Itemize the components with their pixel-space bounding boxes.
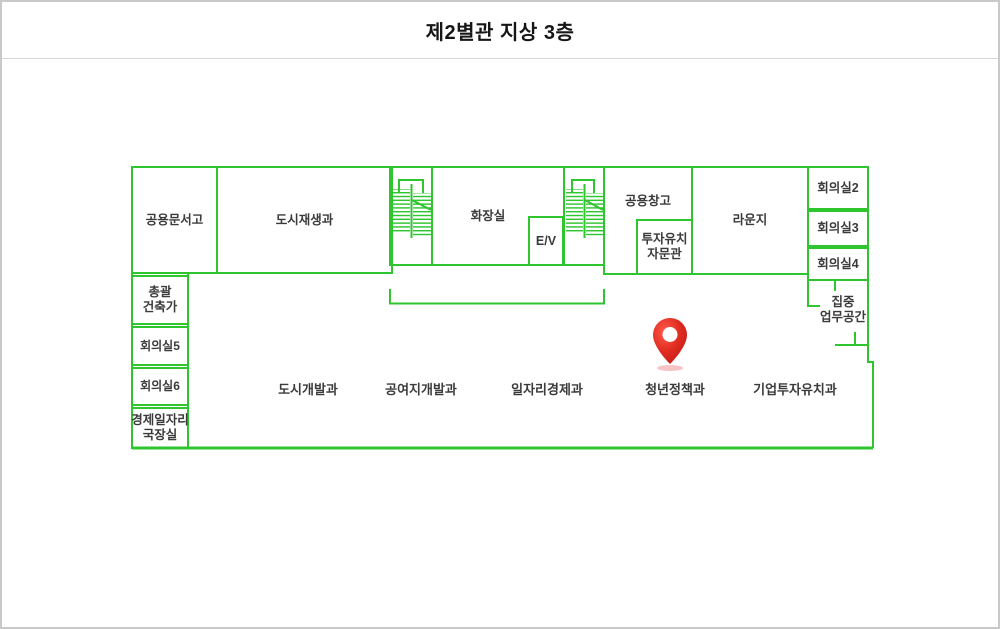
floor-plan-page: 제2별관 지상 3층 — [0, 0, 1000, 629]
location-pin-icon — [647, 315, 693, 373]
floor-plan-walls — [2, 2, 1000, 629]
floor-plan: 공용문서고 도시재생과 화장실 E/V 공용창고 투자유치 자문관 라운지 회의… — [2, 2, 1000, 629]
